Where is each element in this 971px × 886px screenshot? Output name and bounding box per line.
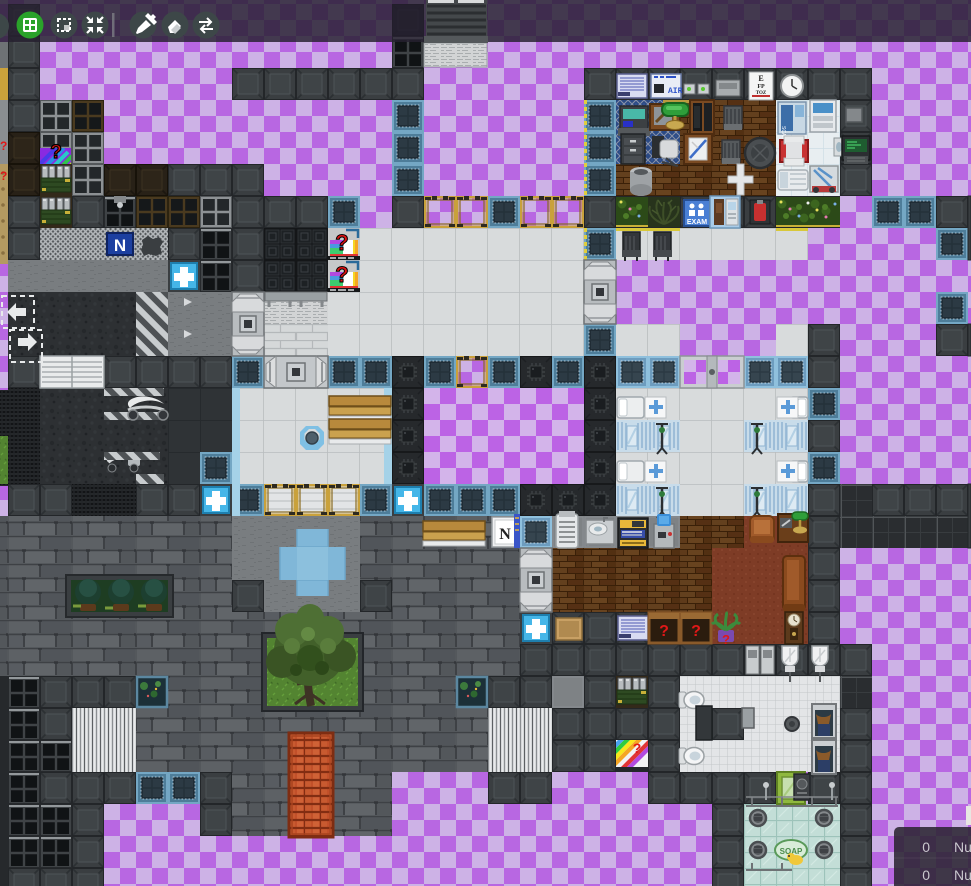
svg-text:Nu: Nu xyxy=(954,867,971,883)
svg-text:?: ? xyxy=(0,139,7,153)
svg-text:N: N xyxy=(499,526,511,543)
svg-text:Nu: Nu xyxy=(954,839,971,855)
svg-text:?: ? xyxy=(691,623,701,640)
svg-text:?: ? xyxy=(659,623,669,640)
svg-text:?: ? xyxy=(50,142,62,163)
svg-text:E: E xyxy=(758,74,763,83)
svg-text:?: ? xyxy=(0,169,7,183)
svg-text:0: 0 xyxy=(922,839,930,855)
svg-text:EXAM: EXAM xyxy=(687,219,707,226)
svg-text:?: ? xyxy=(722,632,730,647)
svg-text:AIR: AIR xyxy=(668,87,683,96)
svg-text:FP: FP xyxy=(757,84,765,90)
svg-text:N: N xyxy=(114,236,126,255)
svg-text:0: 0 xyxy=(922,867,930,883)
